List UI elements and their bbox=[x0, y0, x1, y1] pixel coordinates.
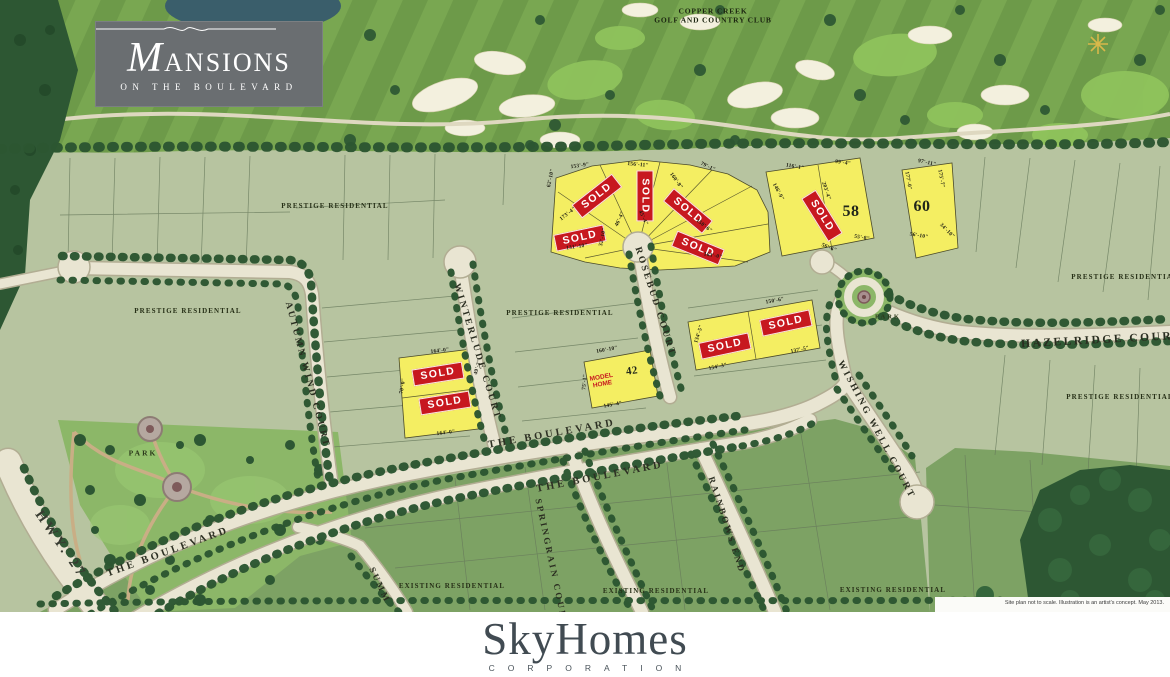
disclaimer-text: Site plan not to scale. Illustration is … bbox=[1005, 600, 1164, 606]
project-logo-tagline: ON THE BOULEVARD bbox=[120, 82, 297, 92]
lot-number-58: 58 bbox=[843, 203, 860, 221]
lot-number-60: 60 bbox=[914, 198, 931, 216]
developer-subtitle: CORPORATION bbox=[476, 663, 695, 673]
area-label-prestige: PRESTIGE RESIDENTIAL bbox=[134, 307, 241, 315]
site-plan-screenshot: MANSIONS ON THE BOULEVARD COPPER CREEK G… bbox=[0, 0, 1170, 677]
logo-flourish bbox=[96, 24, 276, 34]
area-label-existing: EXISTING RESIDENTIAL bbox=[840, 586, 946, 594]
developer-name: SkyHomes bbox=[482, 617, 688, 662]
lot-number-42: 42 bbox=[625, 364, 639, 378]
project-logo-title: MANSIONS bbox=[127, 37, 291, 79]
project-logo: MANSIONS ON THE BOULEVARD bbox=[95, 21, 323, 107]
area-label-prestige: PRESTIGE RESIDENTIAL bbox=[506, 309, 613, 317]
area-label-existing: EXISTING RESIDENTIAL bbox=[603, 587, 709, 595]
area-label-park: PARK bbox=[129, 449, 158, 458]
area-label-prestige: PRESTIGE RESIDENTIAL bbox=[281, 202, 388, 210]
golf-club-label: COPPER CREEK GOLF AND COUNTRY CLUB bbox=[654, 7, 771, 24]
area-label-park: PARK bbox=[875, 314, 901, 321]
golf-club-name-line2: GOLF AND COUNTRY CLUB bbox=[654, 16, 771, 25]
area-label-prestige: PRESTIGE RESIDENTIAL bbox=[1066, 393, 1170, 401]
area-label-prestige: PRESTIGE RESIDENTIAL bbox=[1071, 273, 1170, 281]
compass-marker bbox=[1088, 34, 1108, 54]
developer-logo: SkyHomes CORPORATION bbox=[0, 612, 1170, 677]
area-label-existing: EXISTING RESIDENTIAL bbox=[399, 582, 505, 590]
site-plan-map: MANSIONS ON THE BOULEVARD COPPER CREEK G… bbox=[0, 0, 1170, 612]
